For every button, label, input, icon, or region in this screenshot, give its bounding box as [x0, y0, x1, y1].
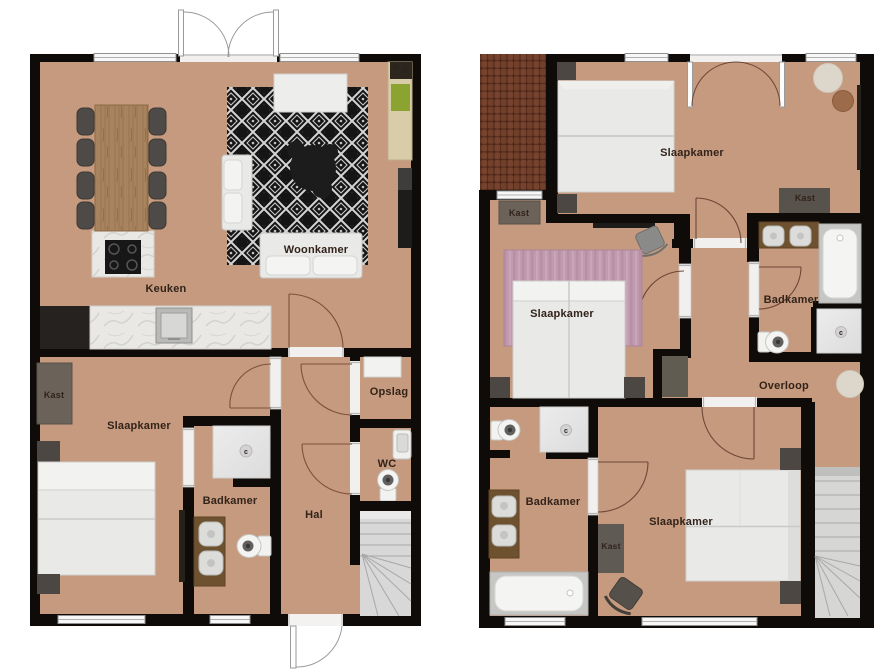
svg-text:Kast: Kast: [509, 208, 529, 218]
svg-text:Slaapkamer: Slaapkamer: [649, 516, 713, 528]
svg-text:c: c: [839, 330, 843, 337]
svg-text:c: c: [244, 449, 248, 456]
svg-text:Kast: Kast: [601, 541, 620, 551]
svg-text:Overloop: Overloop: [759, 380, 809, 392]
svg-text:Hal: Hal: [305, 509, 323, 521]
svg-text:Woonkamer: Woonkamer: [284, 244, 349, 256]
svg-text:Kast: Kast: [44, 390, 64, 400]
svg-text:Badkamer: Badkamer: [764, 294, 819, 306]
svg-text:WC: WC: [378, 458, 397, 470]
svg-text:Kast: Kast: [795, 193, 815, 203]
svg-text:Badkamer: Badkamer: [526, 496, 581, 508]
svg-text:Slaapkamer: Slaapkamer: [660, 147, 724, 159]
svg-text:Slaapkamer: Slaapkamer: [530, 308, 594, 320]
svg-text:Opslag: Opslag: [370, 386, 409, 398]
svg-text:Keuken: Keuken: [146, 283, 187, 295]
svg-text:Slaapkamer: Slaapkamer: [107, 420, 171, 432]
svg-text:Badkamer: Badkamer: [203, 495, 258, 507]
svg-text:c: c: [564, 428, 568, 435]
